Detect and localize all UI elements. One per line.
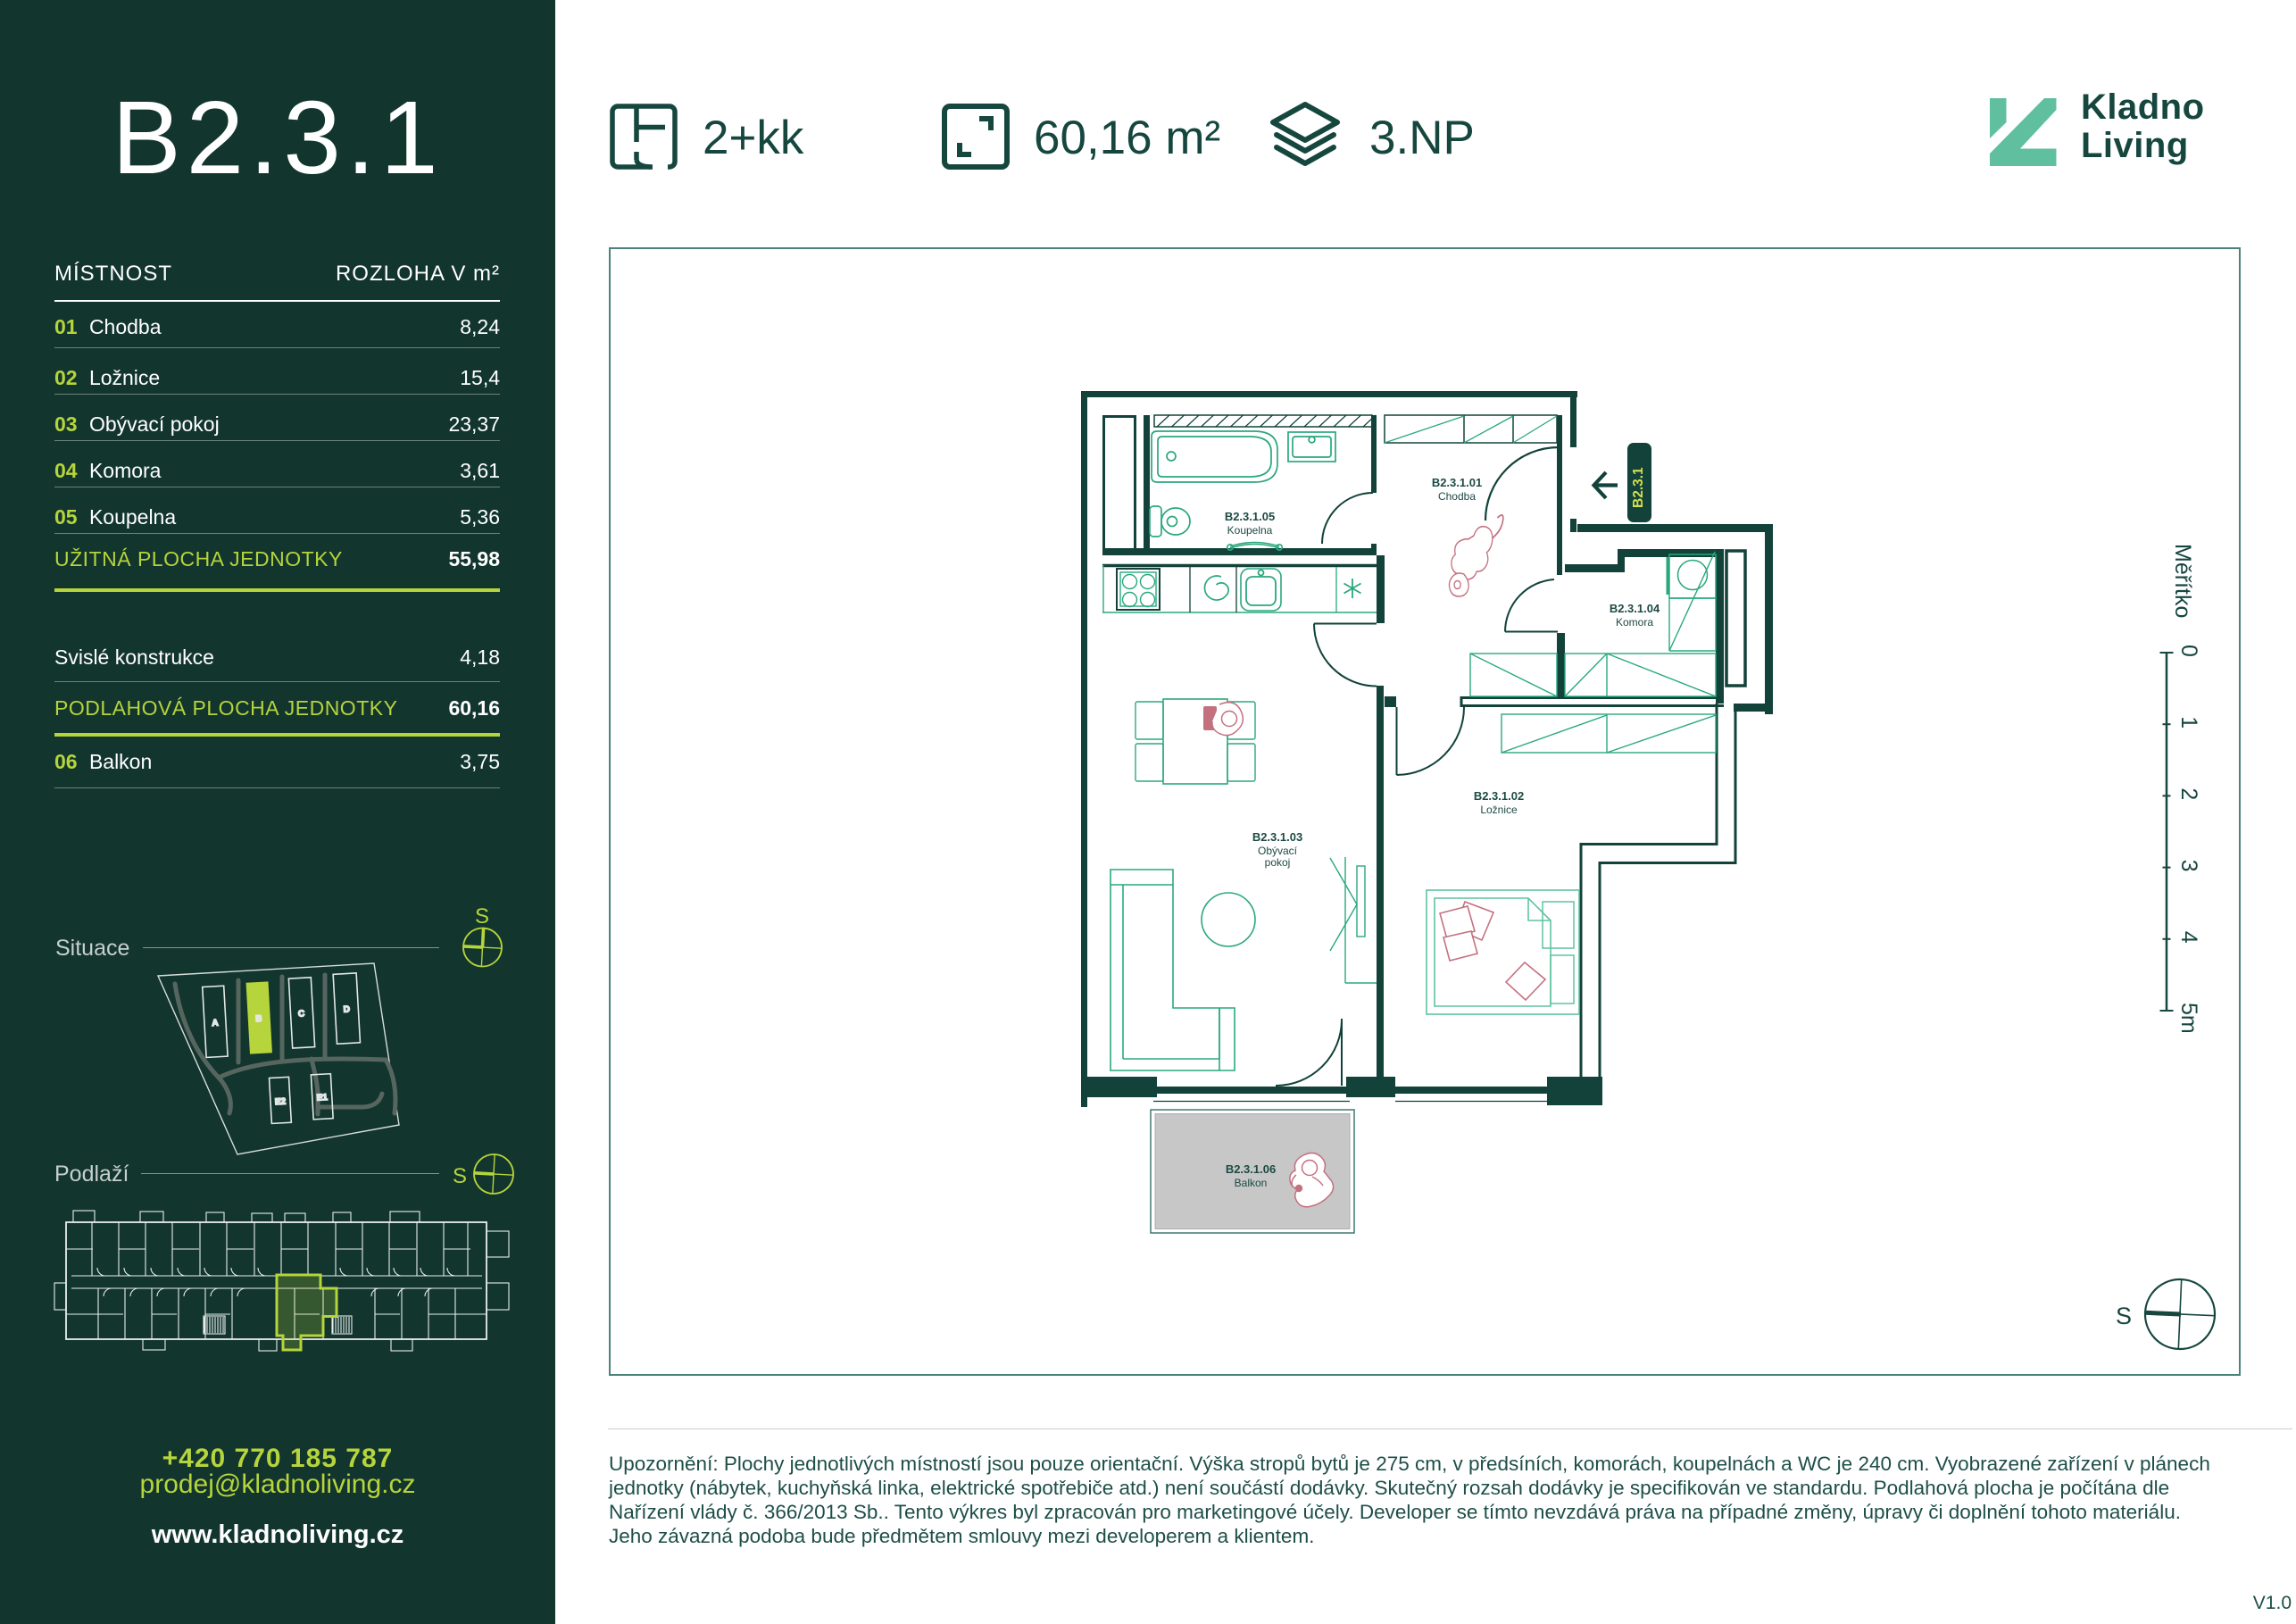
svg-text:B2.3.1.02: B2.3.1.02 xyxy=(1474,789,1524,803)
svg-text:B2.3.1: B2.3.1 xyxy=(1631,467,1646,508)
svg-text:Obývací: Obývací xyxy=(1258,845,1298,857)
svg-text:A: A xyxy=(212,1019,219,1029)
svg-text:Balkon: Balkon xyxy=(1235,1177,1268,1189)
svg-text:S: S xyxy=(475,904,489,929)
svg-text:pokoj: pokoj xyxy=(1265,856,1291,869)
svg-text:3: 3 xyxy=(2176,860,2201,872)
svg-text:4: 4 xyxy=(2176,931,2201,944)
svg-text:S: S xyxy=(2116,1303,2132,1329)
svg-text:Koupelna: Koupelna xyxy=(1227,524,1273,537)
svg-text:B2.3.1.01: B2.3.1.01 xyxy=(1432,476,1482,489)
svg-text:B2.3.1.04: B2.3.1.04 xyxy=(1610,602,1660,615)
svg-text:B2.3.1.05: B2.3.1.05 xyxy=(1225,510,1275,523)
svg-text:C: C xyxy=(298,1009,305,1019)
svg-text:Chodba: Chodba xyxy=(1438,490,1476,503)
svg-text:B2.3.1.06: B2.3.1.06 xyxy=(1226,1162,1276,1176)
svg-text:E1: E1 xyxy=(316,1093,328,1103)
svg-text:E2: E2 xyxy=(275,1097,287,1108)
svg-text:1: 1 xyxy=(2176,716,2201,729)
svg-text:D: D xyxy=(343,1004,350,1014)
svg-text:2: 2 xyxy=(2176,787,2201,800)
svg-text:S: S xyxy=(453,1164,467,1188)
svg-text:B2.3.1.03: B2.3.1.03 xyxy=(1252,830,1302,844)
svg-text:5m: 5m xyxy=(2176,1003,2201,1034)
svg-text:Měřítko: Měřítko xyxy=(2170,544,2195,618)
svg-text:0: 0 xyxy=(2176,645,2201,657)
svg-text:Komora: Komora xyxy=(1616,616,1653,629)
svg-text:Ložnice: Ložnice xyxy=(1480,804,1518,816)
svg-text:B: B xyxy=(255,1014,262,1024)
